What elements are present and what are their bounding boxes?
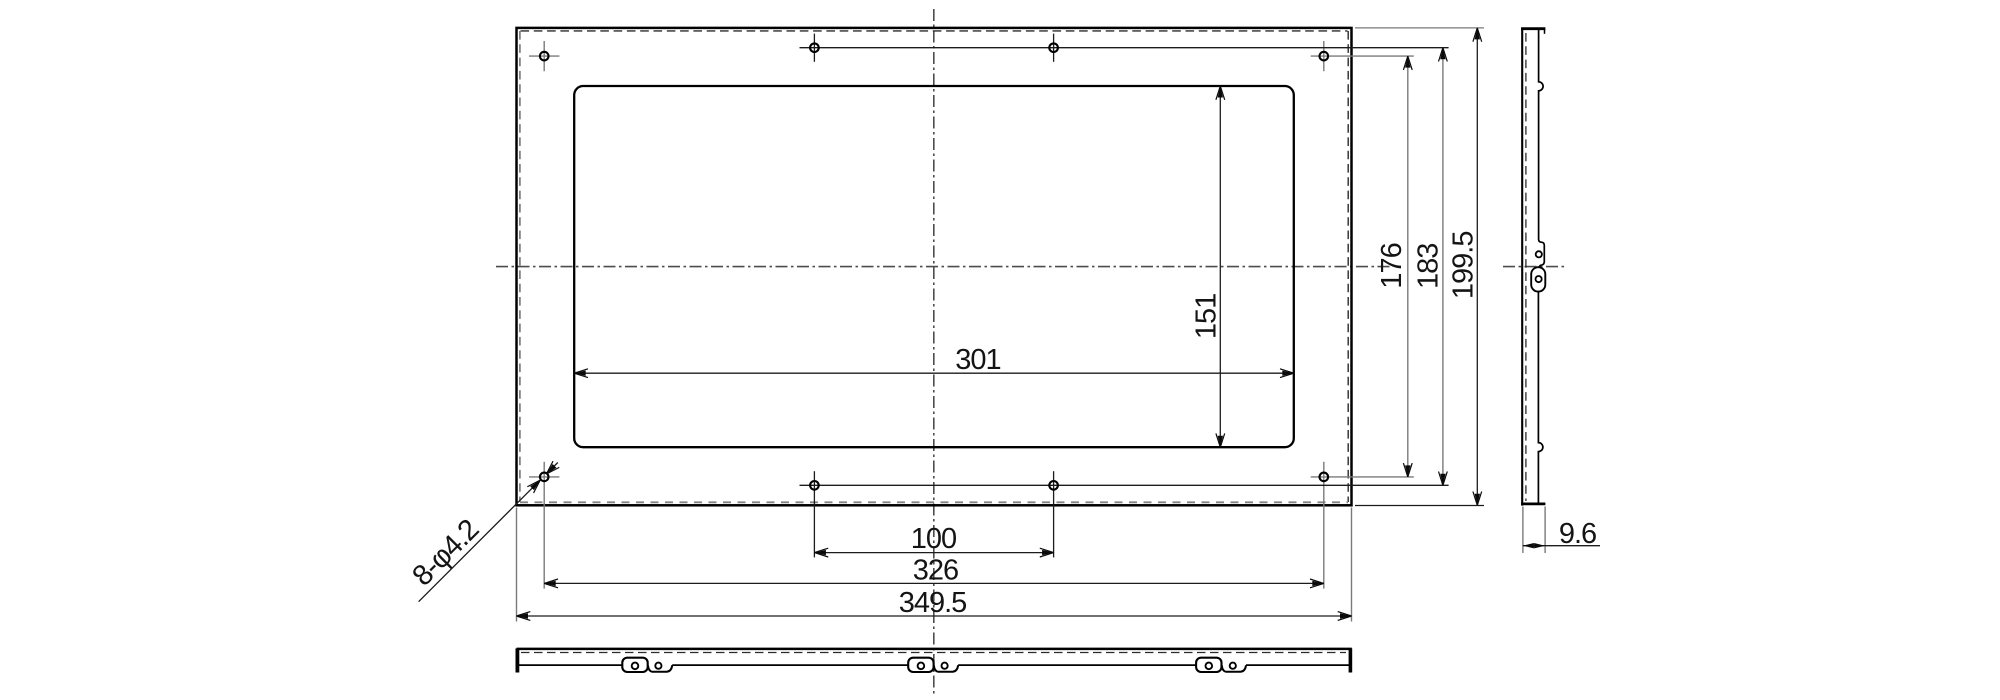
svg-text:349.5: 349.5 <box>899 587 967 619</box>
svg-text:301: 301 <box>955 344 1000 376</box>
svg-text:183: 183 <box>1413 244 1445 289</box>
svg-text:151: 151 <box>1191 294 1223 339</box>
svg-text:100: 100 <box>911 523 956 555</box>
svg-text:176: 176 <box>1376 243 1408 288</box>
svg-text:9.6: 9.6 <box>1559 518 1596 550</box>
svg-text:199.5: 199.5 <box>1448 232 1480 300</box>
svg-text:326: 326 <box>913 555 958 587</box>
